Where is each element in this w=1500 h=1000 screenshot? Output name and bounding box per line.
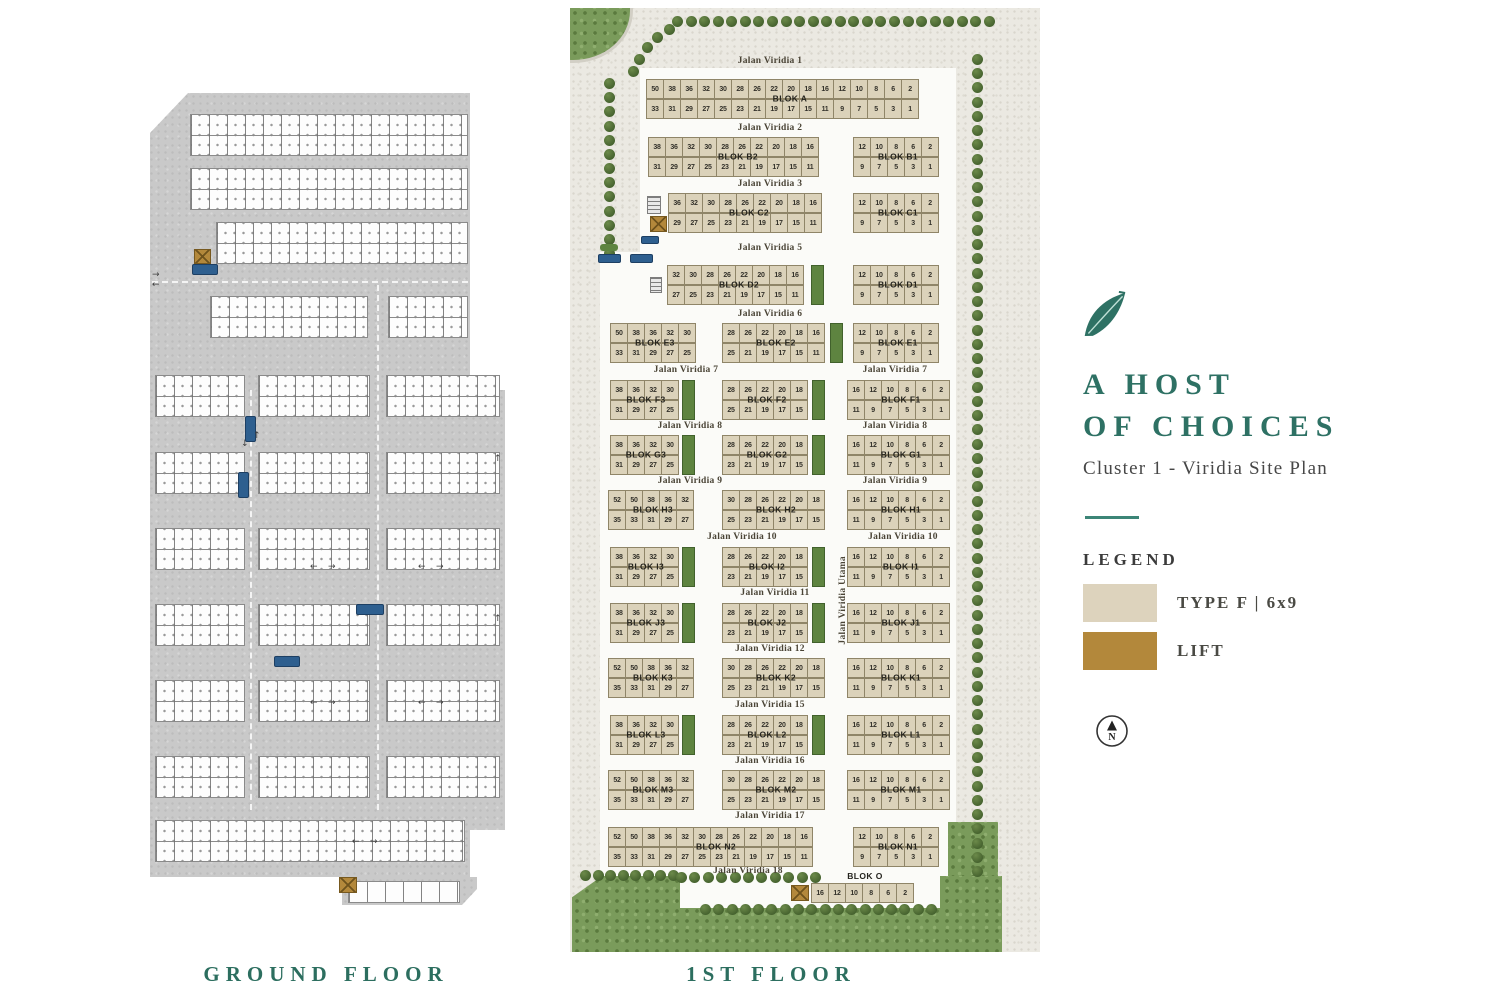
leaf-icon bbox=[1075, 289, 1135, 340]
unit-cell: 20 bbox=[770, 193, 788, 213]
blok-d1: 121086297531BLOK D1 bbox=[853, 265, 943, 305]
unit-cell: 32 bbox=[644, 547, 662, 567]
unit-cell: 2 bbox=[921, 827, 939, 847]
site-plan-page: →←←→←→←→←→↑↑↓↑→← Jalan Viridia 1Jalan Vi… bbox=[0, 0, 1500, 1000]
direction-arrow-icon: ↓ bbox=[241, 440, 249, 449]
unit-row: 3331292725 bbox=[610, 343, 700, 363]
blok-i1: 1612108621197531BLOK I1 bbox=[847, 547, 955, 587]
unit-cell: 21 bbox=[733, 157, 751, 177]
unit-cell: 6 bbox=[915, 380, 933, 400]
direction-arrow-icon: → bbox=[328, 699, 336, 708]
unit-cell: 1 bbox=[932, 790, 950, 810]
unit-cell: 10 bbox=[881, 490, 899, 510]
unit-cell: 15 bbox=[790, 400, 808, 420]
unit-cell: 10 bbox=[870, 137, 888, 157]
unit-cell: 9 bbox=[853, 285, 871, 305]
blok-d2: 32302826222018162725232119171511BLOK D2 bbox=[667, 265, 811, 305]
unit-row: 97531 bbox=[853, 157, 943, 177]
tree-icon bbox=[593, 870, 604, 881]
tree-icon bbox=[604, 163, 615, 174]
unit-cell: 31 bbox=[610, 455, 628, 475]
unit-cell: 32 bbox=[661, 323, 679, 343]
road-label: Jalan Viridia 2 bbox=[738, 123, 803, 133]
unit-cell: 5 bbox=[898, 678, 916, 698]
unit-row: 5250383632 bbox=[608, 770, 698, 790]
unit-cell: 31 bbox=[627, 343, 645, 363]
blok-b2: 3836323028262220181631292725232119171511… bbox=[648, 137, 828, 177]
unit-cell: 36 bbox=[659, 658, 677, 678]
unit-cell: 19 bbox=[735, 285, 753, 305]
parking-strip bbox=[155, 604, 245, 646]
unit-row: 1197531 bbox=[847, 678, 955, 698]
blok-a: 5038363230282622201816121086233312927252… bbox=[646, 79, 934, 119]
unit-cell: 28 bbox=[719, 193, 737, 213]
unit-row: 38363230 bbox=[610, 435, 682, 455]
unit-cell: 52 bbox=[608, 770, 626, 790]
unit-cell: 2 bbox=[932, 547, 950, 567]
unit-row: 38363230 bbox=[610, 715, 682, 735]
unit-cell: 38 bbox=[610, 547, 628, 567]
unit-cell: 16 bbox=[807, 323, 825, 343]
unit-cell: 10 bbox=[881, 658, 899, 678]
unit-cell: 21 bbox=[756, 790, 774, 810]
unit-cell: 7 bbox=[870, 285, 888, 305]
unit-cell: 38 bbox=[610, 603, 628, 623]
unit-cell: 12 bbox=[864, 658, 882, 678]
unit-cell: 26 bbox=[739, 603, 757, 623]
green-space-cell bbox=[682, 715, 695, 755]
unit-cell: 22 bbox=[756, 603, 774, 623]
lift-icon bbox=[650, 216, 667, 232]
unit-cell: 21 bbox=[727, 847, 745, 867]
unit-row: 302826222018 bbox=[722, 770, 830, 790]
tree-icon bbox=[740, 16, 751, 27]
tree-icon bbox=[604, 135, 615, 146]
svg-text:N: N bbox=[1108, 732, 1116, 743]
unit-cell: 11 bbox=[847, 510, 865, 530]
unit-cell: 28 bbox=[722, 715, 740, 735]
unit-cell: 7 bbox=[870, 157, 888, 177]
unit-cell: 15 bbox=[790, 623, 808, 643]
parking-strip bbox=[190, 168, 468, 210]
unit-cell: 33 bbox=[646, 99, 664, 119]
unit-cell: 2 bbox=[932, 380, 950, 400]
road-label: Jalan Viridia 8 bbox=[658, 421, 723, 431]
unit-cell: 1 bbox=[932, 455, 950, 475]
blok-m3: 52503836323533312927BLOK M3 bbox=[608, 770, 698, 810]
unit-cell: 1 bbox=[901, 99, 919, 119]
unit-cell: 8 bbox=[887, 265, 905, 285]
unit-cell: 3 bbox=[904, 157, 922, 177]
unit-cell: 26 bbox=[748, 79, 766, 99]
unit-cell: 30 bbox=[678, 323, 696, 343]
parking-strip bbox=[155, 820, 465, 862]
unit-row: 2725232119171511 bbox=[667, 285, 811, 305]
tree-icon bbox=[972, 852, 983, 863]
car-icon bbox=[238, 472, 249, 498]
unit-cell: 23 bbox=[739, 790, 757, 810]
unit-cell: 20 bbox=[752, 265, 770, 285]
tree-icon bbox=[604, 206, 615, 217]
tree-icon bbox=[972, 225, 983, 236]
parking-strip bbox=[386, 375, 500, 417]
unit-cell: 18 bbox=[790, 715, 808, 735]
unit-cell: 6 bbox=[904, 137, 922, 157]
direction-arrow-icon: ← bbox=[418, 563, 426, 572]
stairs-icon bbox=[647, 196, 661, 214]
unit-cell: 36 bbox=[627, 435, 645, 455]
unit-cell: 25 bbox=[661, 455, 679, 475]
tree-icon bbox=[794, 16, 805, 27]
unit-cell: 30 bbox=[714, 79, 732, 99]
unit-cell: 19 bbox=[756, 735, 774, 755]
unit-cell: 28 bbox=[731, 79, 749, 99]
unit-cell: 9 bbox=[853, 847, 871, 867]
tree-icon bbox=[797, 872, 808, 883]
unit-cell: 16 bbox=[847, 547, 865, 567]
unit-cell: 25 bbox=[722, 678, 740, 698]
unit-cell: 29 bbox=[644, 343, 662, 363]
unit-cell: 29 bbox=[680, 99, 698, 119]
unit-cell: 35 bbox=[608, 847, 626, 867]
unit-cell: 30 bbox=[661, 715, 679, 735]
parking-strip bbox=[258, 756, 370, 798]
tree-icon bbox=[604, 121, 615, 132]
unit-row: 161210862 bbox=[811, 883, 919, 903]
unit-row: 292725232119171511 bbox=[668, 213, 830, 233]
unit-row: 2321191715 bbox=[722, 567, 812, 587]
unit-row: 363230282622201816 bbox=[668, 193, 830, 213]
unit-cell: 23 bbox=[722, 623, 740, 643]
unit-row: 97531 bbox=[853, 213, 943, 233]
tree-icon bbox=[930, 16, 941, 27]
unit-cell: 2 bbox=[921, 193, 939, 213]
tree-icon bbox=[652, 32, 663, 43]
unit-row: 31292725 bbox=[610, 623, 682, 643]
unit-cell: 31 bbox=[648, 157, 666, 177]
unit-cell: 16 bbox=[795, 827, 813, 847]
unit-cell: 2 bbox=[921, 137, 939, 157]
road-label: Jalan Viridia 9 bbox=[863, 476, 928, 486]
unit-cell: 21 bbox=[739, 343, 757, 363]
unit-cell: 29 bbox=[659, 678, 677, 698]
tree-icon bbox=[676, 872, 687, 883]
divider-line bbox=[1085, 516, 1139, 519]
unit-row: 1197531 bbox=[847, 735, 955, 755]
page-title-line1: A HOST bbox=[1083, 368, 1236, 402]
unit-cell: 28 bbox=[739, 658, 757, 678]
unit-cell: 7 bbox=[881, 623, 899, 643]
unit-cell: 27 bbox=[644, 567, 662, 587]
unit-row: 252321191715 bbox=[722, 510, 830, 530]
road-label: Jalan Viridia 12 bbox=[735, 644, 805, 654]
unit-cell: 26 bbox=[756, 490, 774, 510]
unit-cell: 28 bbox=[722, 603, 740, 623]
tree-icon bbox=[972, 752, 983, 763]
unit-cell: 36 bbox=[680, 79, 698, 99]
unit-cell: 25 bbox=[678, 343, 696, 363]
unit-cell: 5 bbox=[898, 790, 916, 810]
road-label: Jalan Viridia 1 bbox=[738, 56, 803, 66]
parking-strip bbox=[155, 756, 245, 798]
unit-cell: 15 bbox=[769, 285, 787, 305]
unit-cell: 22 bbox=[756, 715, 774, 735]
bush-icon bbox=[600, 244, 618, 251]
lane-divider bbox=[152, 281, 468, 283]
unit-cell: 1 bbox=[921, 285, 939, 305]
blok-k3: 52503836323533312927BLOK K3 bbox=[608, 658, 698, 698]
parking-strip bbox=[216, 222, 468, 264]
unit-cell: 38 bbox=[648, 137, 666, 157]
unit-cell: 3 bbox=[915, 790, 933, 810]
unit-cell: 10 bbox=[881, 547, 899, 567]
unit-cell: 26 bbox=[733, 137, 751, 157]
unit-cell: 30 bbox=[722, 490, 740, 510]
unit-cell: 19 bbox=[773, 790, 791, 810]
unit-cell: 5 bbox=[867, 99, 885, 119]
unit-cell: 32 bbox=[682, 137, 700, 157]
unit-cell: 10 bbox=[870, 265, 888, 285]
unit-cell: 6 bbox=[904, 323, 922, 343]
unit-cell: 50 bbox=[625, 490, 643, 510]
unit-cell: 9 bbox=[864, 790, 882, 810]
unit-cell: 28 bbox=[739, 490, 757, 510]
direction-arrow-icon: ↑ bbox=[494, 455, 502, 464]
unit-cell: 25 bbox=[722, 510, 740, 530]
unit-cell: 25 bbox=[722, 790, 740, 810]
unit-cell: 21 bbox=[736, 213, 754, 233]
tree-icon bbox=[634, 54, 645, 65]
unit-cell: 22 bbox=[773, 770, 791, 790]
unit-cell: 12 bbox=[853, 827, 871, 847]
unit-cell: 31 bbox=[610, 400, 628, 420]
unit-cell: 8 bbox=[887, 193, 905, 213]
unit-cell: 18 bbox=[807, 658, 825, 678]
blok-g2: 28262220182321191715BLOK G2 bbox=[722, 435, 812, 475]
unit-cell: 16 bbox=[811, 883, 829, 903]
unit-cell: 21 bbox=[739, 567, 757, 587]
unit-cell: 25 bbox=[661, 400, 679, 420]
road-label: Jalan Viridia 9 bbox=[658, 476, 723, 486]
tree-icon bbox=[643, 870, 654, 881]
unit-cell: 26 bbox=[727, 827, 745, 847]
unit-cell: 19 bbox=[773, 510, 791, 530]
tree-icon bbox=[972, 866, 983, 877]
stairs-icon bbox=[650, 277, 662, 293]
blok-k2: 302826222018252321191715BLOK K2 bbox=[722, 658, 830, 698]
parking-strip bbox=[386, 452, 500, 494]
tree-icon bbox=[972, 268, 983, 279]
unit-cell: 17 bbox=[767, 157, 785, 177]
tree-icon bbox=[984, 16, 995, 27]
unit-row: 97531 bbox=[853, 343, 943, 363]
unit-cell: 22 bbox=[773, 658, 791, 678]
unit-cell: 31 bbox=[610, 567, 628, 587]
legend-swatch bbox=[1083, 632, 1157, 670]
unit-cell: 17 bbox=[773, 567, 791, 587]
unit-cell: 30 bbox=[661, 435, 679, 455]
unit-cell: 17 bbox=[773, 400, 791, 420]
unit-cell: 52 bbox=[608, 658, 626, 678]
unit-cell: 15 bbox=[790, 567, 808, 587]
unit-cell: 9 bbox=[864, 735, 882, 755]
unit-row: 2826222018 bbox=[722, 547, 812, 567]
unit-cell: 21 bbox=[739, 455, 757, 475]
unit-cell: 3 bbox=[915, 678, 933, 698]
unit-cell: 26 bbox=[739, 435, 757, 455]
unit-cell: 6 bbox=[915, 715, 933, 735]
unit-row: 1197531 bbox=[847, 455, 955, 475]
unit-cell: 3 bbox=[915, 567, 933, 587]
unit-cell: 9 bbox=[853, 157, 871, 177]
unit-cell: 10 bbox=[881, 435, 899, 455]
unit-cell: 38 bbox=[627, 323, 645, 343]
unit-row: 161210862 bbox=[847, 380, 955, 400]
unit-row: 161210862 bbox=[847, 547, 955, 567]
green-space-cell bbox=[682, 435, 695, 475]
blok-e2: 282622201816252119171511BLOK E2 bbox=[722, 323, 830, 363]
unit-row: 31292725 bbox=[610, 735, 682, 755]
compass-north-icon: N bbox=[1090, 709, 1134, 753]
unit-cell: 2 bbox=[932, 435, 950, 455]
unit-cell: 8 bbox=[898, 770, 916, 790]
car-icon bbox=[598, 254, 621, 263]
unit-cell: 36 bbox=[659, 827, 677, 847]
unit-cell: 7 bbox=[881, 790, 899, 810]
unit-cell: 19 bbox=[773, 678, 791, 698]
unit-cell: 8 bbox=[867, 79, 885, 99]
unit-cell: 18 bbox=[787, 193, 805, 213]
unit-cell: 6 bbox=[915, 547, 933, 567]
tree-icon bbox=[700, 904, 711, 915]
blok-g1: 1612108621197531BLOK G1 bbox=[847, 435, 955, 475]
unit-cell: 9 bbox=[853, 213, 871, 233]
unit-cell: 17 bbox=[782, 99, 800, 119]
unit-row: 3533312927 bbox=[608, 510, 698, 530]
tree-icon bbox=[972, 695, 983, 706]
tree-icon bbox=[810, 872, 821, 883]
unit-cell: 28 bbox=[710, 827, 728, 847]
unit-cell: 10 bbox=[870, 193, 888, 213]
green-space-cell bbox=[812, 603, 825, 643]
unit-cell: 23 bbox=[719, 213, 737, 233]
blok-n2: 5250383632302826222018163533312927252321… bbox=[608, 827, 824, 867]
legend-title: LEGEND bbox=[1083, 550, 1179, 570]
unit-cell: 32 bbox=[644, 715, 662, 735]
unit-cell: 31 bbox=[642, 510, 660, 530]
unit-cell: 20 bbox=[773, 547, 791, 567]
unit-cell: 17 bbox=[790, 510, 808, 530]
unit-cell: 3 bbox=[904, 285, 922, 305]
unit-cell: 8 bbox=[887, 137, 905, 157]
unit-cell: 20 bbox=[773, 380, 791, 400]
parking-strip bbox=[386, 756, 500, 798]
unit-cell: 8 bbox=[898, 547, 916, 567]
unit-cell: 5 bbox=[898, 510, 916, 530]
unit-cell: 11 bbox=[847, 567, 865, 587]
unit-cell: 20 bbox=[773, 603, 791, 623]
unit-row: 5250383632 bbox=[608, 658, 698, 678]
blok-e3: 50383632303331292725BLOK E3 bbox=[610, 323, 700, 363]
green-space-cell bbox=[682, 380, 695, 420]
unit-cell: 7 bbox=[870, 847, 888, 867]
lift-icon bbox=[791, 885, 809, 901]
unit-cell: 25 bbox=[661, 623, 679, 643]
unit-cell: 31 bbox=[642, 678, 660, 698]
unit-cell: 36 bbox=[644, 323, 662, 343]
unit-cell: 1 bbox=[932, 623, 950, 643]
tree-icon bbox=[664, 24, 675, 35]
unit-cell: 18 bbox=[807, 490, 825, 510]
unit-cell: 15 bbox=[807, 510, 825, 530]
green-space-cell bbox=[811, 265, 824, 305]
unit-cell: 38 bbox=[642, 770, 660, 790]
tree-icon bbox=[740, 904, 751, 915]
unit-cell: 7 bbox=[850, 99, 868, 119]
parking-strip bbox=[388, 296, 468, 338]
unit-cell: 8 bbox=[887, 827, 905, 847]
unit-cell: 19 bbox=[744, 847, 762, 867]
unit-cell: 12 bbox=[864, 603, 882, 623]
unit-cell: 5 bbox=[887, 213, 905, 233]
unit-cell: 23 bbox=[701, 285, 719, 305]
unit-cell: 25 bbox=[693, 847, 711, 867]
green-space-cell bbox=[682, 547, 695, 587]
unit-cell: 1 bbox=[921, 157, 939, 177]
unit-cell: 36 bbox=[627, 715, 645, 735]
unit-cell: 9 bbox=[864, 678, 882, 698]
unit-cell: 11 bbox=[804, 213, 822, 233]
unit-cell: 11 bbox=[816, 99, 834, 119]
unit-cell: 31 bbox=[610, 735, 628, 755]
tree-icon bbox=[833, 904, 844, 915]
unit-cell: 12 bbox=[853, 137, 871, 157]
tree-icon bbox=[862, 16, 873, 27]
unit-cell: 27 bbox=[644, 623, 662, 643]
unit-cell: 29 bbox=[668, 213, 686, 233]
unit-cell: 22 bbox=[744, 827, 762, 847]
tree-icon bbox=[972, 382, 983, 393]
unit-cell: 17 bbox=[773, 455, 791, 475]
road-label: Jalan Viridia 3 bbox=[738, 179, 803, 189]
car-icon bbox=[274, 656, 300, 667]
unit-cell: 15 bbox=[790, 343, 808, 363]
unit-cell: 32 bbox=[676, 658, 694, 678]
tree-icon bbox=[972, 282, 983, 293]
unit-row: 31292725 bbox=[610, 455, 682, 475]
unit-cell: 38 bbox=[642, 658, 660, 678]
unit-row: 31292725232119171511 bbox=[648, 157, 828, 177]
unit-cell: 6 bbox=[884, 79, 902, 99]
unit-cell: 7 bbox=[881, 400, 899, 420]
unit-row: 2321191715 bbox=[722, 623, 812, 643]
unit-cell: 18 bbox=[769, 265, 787, 285]
blok-f1: 1612108621197531BLOK F1 bbox=[847, 380, 955, 420]
direction-arrow-icon: ← bbox=[352, 838, 360, 847]
unit-cell: 18 bbox=[790, 547, 808, 567]
direction-arrow-icon: → bbox=[152, 271, 160, 280]
unit-cell: 10 bbox=[881, 770, 899, 790]
unit-cell: 29 bbox=[659, 790, 677, 810]
unit-row: 1210862 bbox=[853, 827, 943, 847]
tree-icon bbox=[972, 795, 983, 806]
tree-icon bbox=[604, 149, 615, 160]
parking-strip bbox=[258, 604, 370, 646]
blok-m1: 1612108621197531BLOK M1 bbox=[847, 770, 955, 810]
unit-cell: 27 bbox=[644, 455, 662, 475]
tree-icon bbox=[793, 904, 804, 915]
unit-row: 3533312927 bbox=[608, 790, 698, 810]
